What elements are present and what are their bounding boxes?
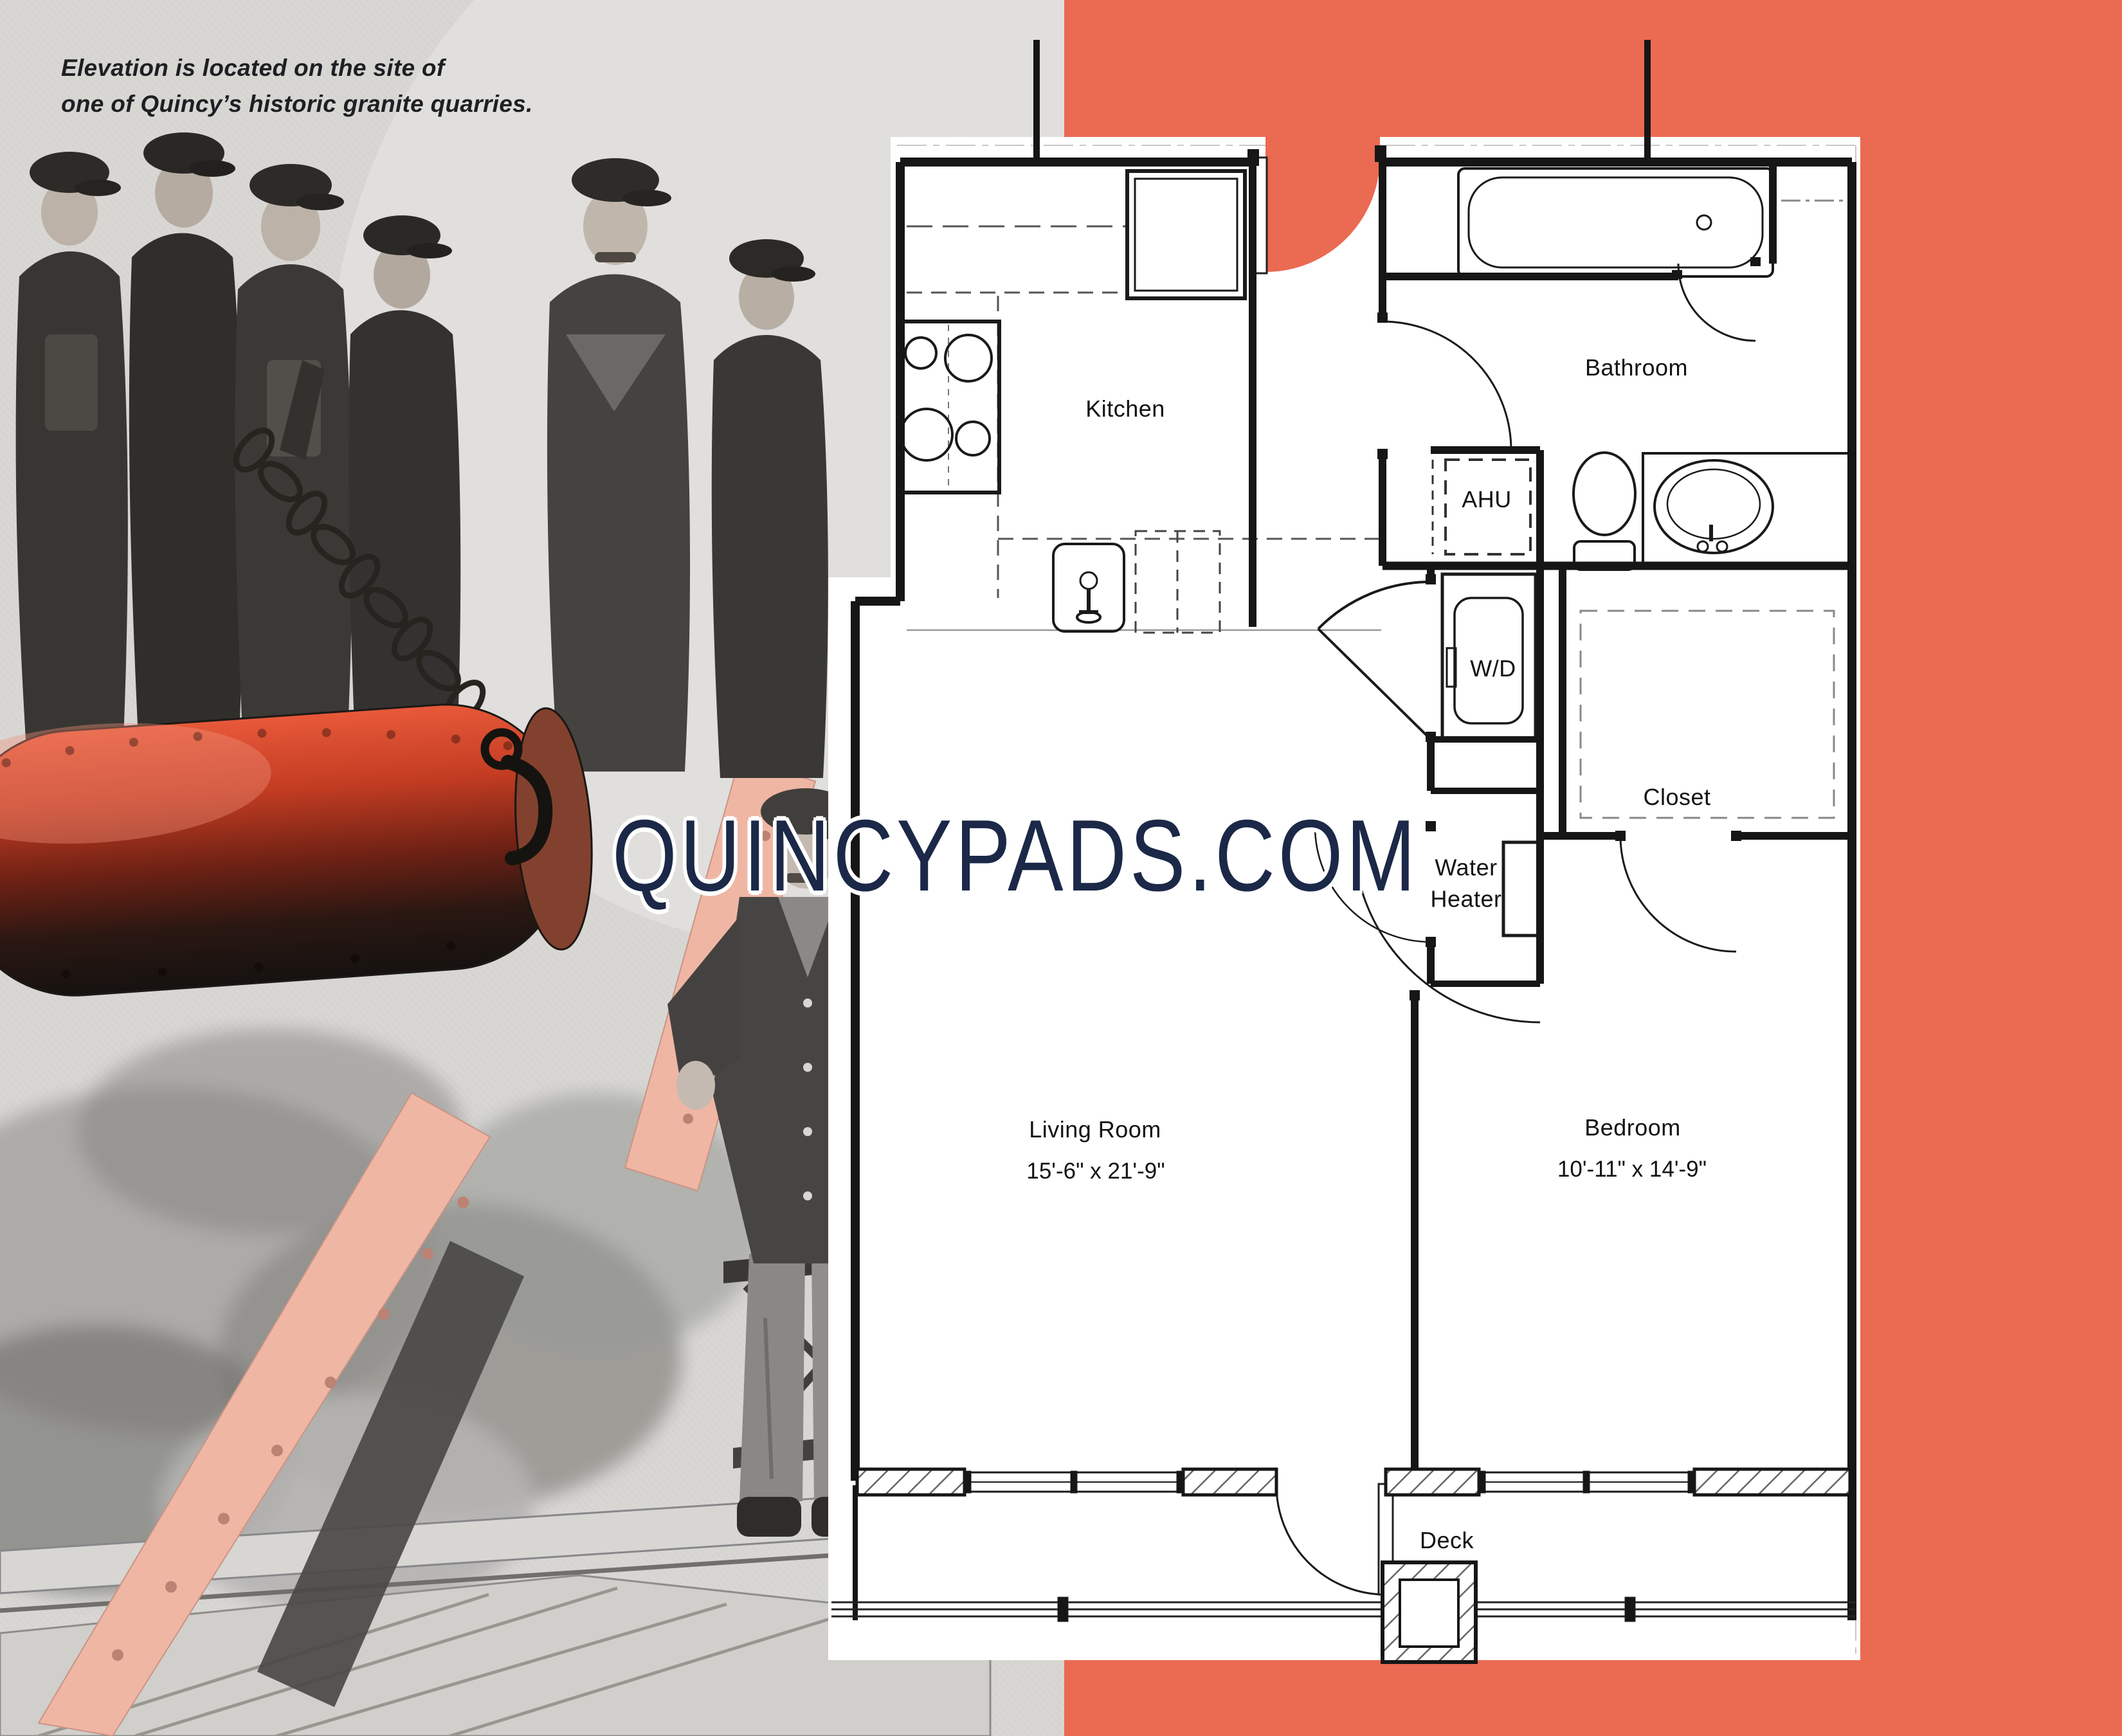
- room-label-bathroom: Bathroom: [1585, 354, 1688, 381]
- room-label-closet: Closet: [1643, 784, 1710, 811]
- deck-post: [1383, 1562, 1476, 1662]
- room-label-water-heater: Water Heater: [1411, 852, 1521, 914]
- site-watermark: QUINCYPADS.COM: [612, 805, 1419, 908]
- room-label-wd: W/D: [1470, 655, 1516, 682]
- room-dim-bedroom: 10'-11" x 14'-9": [1557, 1157, 1707, 1182]
- room-label-living-room: Living Room: [1029, 1116, 1161, 1143]
- room-dim-living-room: 15'-6" x 21'-9": [1026, 1159, 1165, 1184]
- room-label-ahu: AHU: [1462, 486, 1512, 513]
- room-label-deck: Deck: [1420, 1527, 1474, 1554]
- room-label-kitchen: Kitchen: [1085, 395, 1165, 422]
- room-label-bedroom: Bedroom: [1584, 1114, 1681, 1141]
- page: Elevation is located on the site of one …: [0, 0, 2122, 1736]
